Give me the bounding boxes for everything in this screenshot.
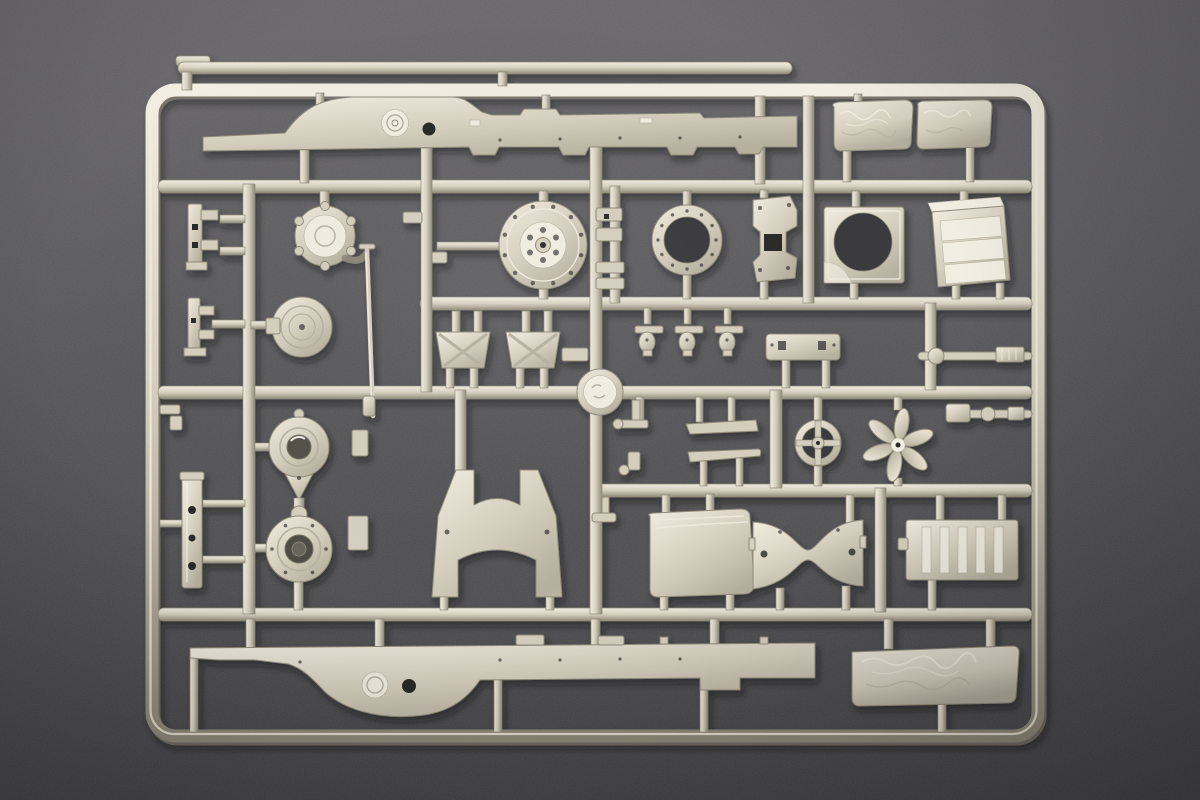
vignette	[0, 0, 1200, 800]
photo-frame	[0, 0, 1200, 800]
model-kit-sprue-photo	[0, 0, 1200, 800]
